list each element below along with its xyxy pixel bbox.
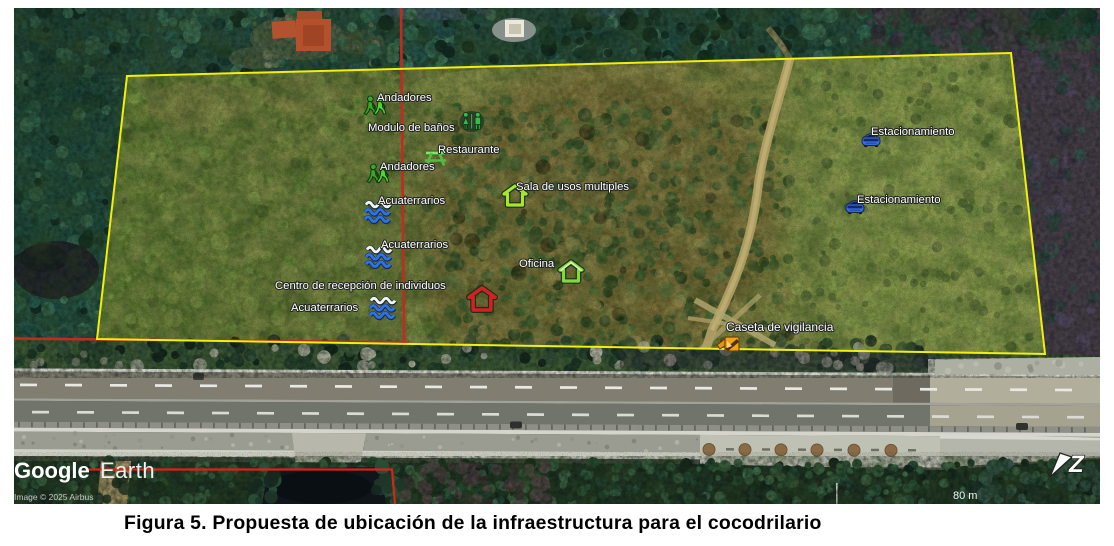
svg-text:Figura 5. Propuesta de ubicaci: Figura 5. Propuesta de ubicación de la i… — [124, 512, 822, 534]
svg-text:Image © 2025 Airbus: Image © 2025 Airbus — [14, 492, 94, 502]
svg-text:Google: Google — [14, 458, 90, 483]
svg-text:Andadores: Andadores — [377, 92, 432, 104]
svg-text:Centro de recepción de indivi: Centro de recepción de individuos — [275, 280, 446, 292]
svg-text:Acuaterrarios: Acuaterrarios — [291, 302, 359, 314]
svg-text:Z: Z — [1068, 451, 1085, 478]
svg-text:80 m: 80 m — [953, 490, 977, 502]
svg-text:Acuaterrarios: Acuaterrarios — [381, 239, 449, 251]
svg-text:Oficina: Oficina — [519, 258, 555, 270]
svg-text:Earth: Earth — [100, 458, 155, 483]
svg-text:Restaurante: Restaurante — [438, 144, 500, 156]
svg-text:Andadores: Andadores — [380, 161, 435, 173]
svg-text:Acuaterrarios: Acuaterrarios — [378, 195, 446, 207]
svg-text:Modulo de baños: Modulo de baños — [368, 122, 455, 134]
svg-text:Caseta de vigilancia: Caseta de vigilancia — [726, 320, 834, 334]
svg-text:Estacionamiento: Estacionamiento — [857, 194, 941, 206]
svg-text:Estacionamiento: Estacionamiento — [871, 126, 955, 138]
svg-text:Sala de usos multiples: Sala de usos multiples — [516, 181, 629, 193]
